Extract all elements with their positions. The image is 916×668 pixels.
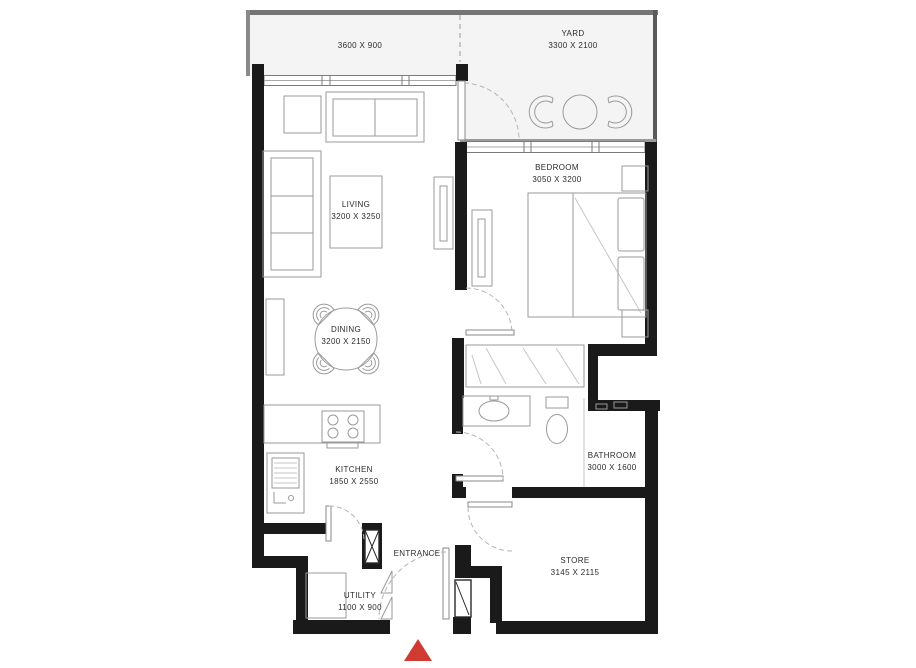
utility-dims: 1100 X 900 — [338, 603, 382, 612]
wall-segment — [453, 617, 471, 634]
yard-right-wall — [653, 10, 657, 142]
toilet-tank — [546, 397, 568, 408]
pillow — [618, 198, 644, 251]
kitchen-door-arc — [329, 506, 364, 541]
store-dims: 3145 X 2115 — [551, 568, 600, 577]
wall-segment — [645, 487, 658, 634]
parapet-top-edge — [246, 10, 658, 15]
bedroom-door-leaf — [466, 330, 514, 335]
store-label: STORE — [560, 556, 589, 565]
entrance-door-leaf — [443, 548, 449, 619]
wall-segment — [452, 338, 464, 398]
floorplan-drawing: 3600 X 900 YARD 3300 X 2100 LIVING 3200 … — [0, 0, 916, 668]
bathroom-door-arc — [456, 432, 503, 479]
wall-segment — [252, 556, 308, 568]
entrance-marker-triangle — [404, 639, 432, 661]
wall-segment — [452, 396, 463, 434]
stove — [322, 411, 364, 442]
wall-segment — [455, 142, 467, 290]
washbasin — [479, 401, 509, 421]
yard-dims: 3300 X 2100 — [548, 41, 597, 50]
floorplan-canvas: 3600 X 900 YARD 3300 X 2100 LIVING 3200 … — [0, 0, 916, 668]
wall-segment — [588, 344, 657, 356]
store-door-leaf — [468, 502, 512, 507]
bed — [528, 193, 646, 317]
burner — [328, 415, 338, 425]
toilet-bowl — [547, 415, 568, 444]
wall-segment — [496, 621, 658, 634]
doors — [326, 81, 519, 619]
sofa — [263, 151, 321, 277]
dining-cabinet — [266, 299, 284, 375]
wall-segment — [252, 64, 264, 568]
nightstand — [622, 310, 648, 337]
burner — [348, 415, 358, 425]
wall-segment — [293, 620, 390, 634]
wall-segment — [588, 344, 598, 406]
wall-segment — [264, 523, 326, 534]
living-dims: 3200 X 3250 — [331, 212, 380, 221]
wardrobe — [466, 345, 584, 387]
pillow — [618, 257, 644, 310]
utility-label: UTILITY — [344, 591, 377, 600]
basin-faucet — [490, 396, 498, 400]
bathroom-dims: 3000 X 1600 — [587, 463, 636, 472]
yard-door-leaf — [458, 81, 465, 140]
kitchen-furniture — [264, 405, 380, 513]
wall-segment — [455, 545, 471, 568]
wall-segment — [456, 64, 468, 81]
balcony-dims: 3600 X 900 — [338, 41, 383, 50]
bathroom-door-leaf — [456, 476, 503, 481]
utility-bifold-door — [381, 571, 392, 619]
wall-segment — [645, 142, 657, 354]
bedroom-dims: 3050 X 3200 — [532, 175, 581, 184]
entrance-label: ENTRANCE — [394, 549, 441, 558]
nightstand — [622, 166, 648, 191]
dining-label: DINING — [331, 325, 361, 334]
kitchen-label: KITCHEN — [335, 465, 373, 474]
bedroom-door-arc — [466, 288, 512, 334]
burner — [348, 428, 358, 438]
bedroom-furniture — [472, 166, 648, 337]
sink-knob — [289, 496, 294, 501]
store-door-arc — [468, 507, 512, 551]
wall-segment — [490, 578, 502, 623]
wall-segment — [645, 400, 658, 498]
living-furniture — [263, 92, 453, 277]
balcony-left-wall — [246, 10, 250, 76]
wall-segment — [512, 487, 658, 498]
kitchen-dims: 1850 X 2550 — [329, 477, 378, 486]
dining-dims: 3200 X 2150 — [321, 337, 370, 346]
tv-unit-bedroom — [472, 210, 492, 286]
living-label: LIVING — [342, 200, 370, 209]
kitchen-door-leaf — [326, 506, 331, 541]
side-table — [284, 96, 321, 133]
bedroom-label: BEDROOM — [535, 163, 579, 172]
yard-label: YARD — [561, 29, 584, 38]
bathroom-label: BATHROOM — [588, 451, 636, 460]
tv-unit-living — [434, 177, 453, 249]
entrance-door-arc — [379, 552, 446, 619]
burner — [328, 428, 338, 438]
